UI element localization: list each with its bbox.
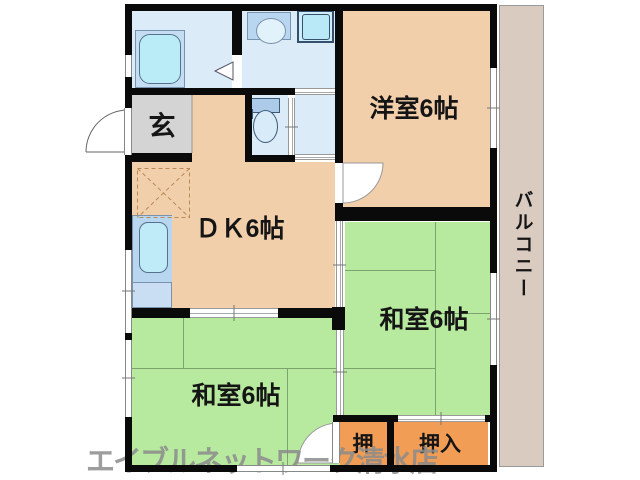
dk-label: ＤＫ6帖 <box>196 209 285 245</box>
western-room-door-swing <box>343 163 383 203</box>
balcony-label: バルコニー <box>509 190 536 300</box>
window <box>490 273 497 365</box>
window <box>125 55 132 77</box>
floor-plan: 玄 ＤＫ6帖 洋室6帖 和室6帖 和室6帖 押 押入 バルコニー エイブルネット… <box>0 0 640 480</box>
japanese-room-right-label: 和室6帖 <box>380 300 469 336</box>
sliding-door <box>295 154 335 160</box>
entry-step-marker <box>138 169 190 218</box>
sliding-door <box>398 415 485 422</box>
entry-door-swing-arc <box>86 110 128 152</box>
western-room-label: 洋室6帖 <box>370 89 459 125</box>
japanese-room-bottom-label: 和室6帖 <box>192 376 281 412</box>
door-symbols-layer <box>0 0 640 480</box>
genkan-label: 玄 <box>149 105 176 144</box>
window <box>490 68 497 148</box>
sliding-door <box>288 98 295 155</box>
sliding-door <box>336 221 343 307</box>
closet-door-leaf <box>332 422 340 463</box>
bath-door-icon <box>215 62 233 80</box>
watermark-text: エイブルネットワーク清水店 <box>86 438 437 480</box>
window <box>125 340 132 417</box>
sliding-door <box>295 88 335 95</box>
fusuma-partition <box>336 330 344 415</box>
window <box>237 465 330 472</box>
window <box>125 250 132 333</box>
entry-door-leaf <box>124 108 132 155</box>
sliding-door <box>190 308 278 318</box>
